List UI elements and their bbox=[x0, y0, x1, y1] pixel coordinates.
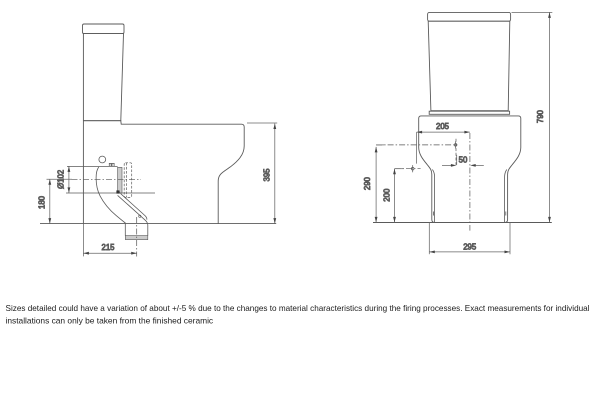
svg-text:395: 395 bbox=[262, 168, 271, 182]
svg-text:50: 50 bbox=[459, 156, 468, 165]
svg-text:installations can only be take: installations can only be taken from the… bbox=[6, 315, 214, 325]
svg-text:295: 295 bbox=[463, 242, 477, 251]
svg-text:290: 290 bbox=[363, 176, 372, 190]
svg-text:180: 180 bbox=[37, 195, 46, 209]
svg-text:790: 790 bbox=[536, 109, 545, 123]
svg-text:Sizes detailed could have a va: Sizes detailed could have a variation of… bbox=[6, 303, 590, 313]
svg-text:205: 205 bbox=[436, 122, 450, 131]
svg-text:200: 200 bbox=[382, 188, 391, 202]
svg-text:215: 215 bbox=[101, 243, 115, 252]
